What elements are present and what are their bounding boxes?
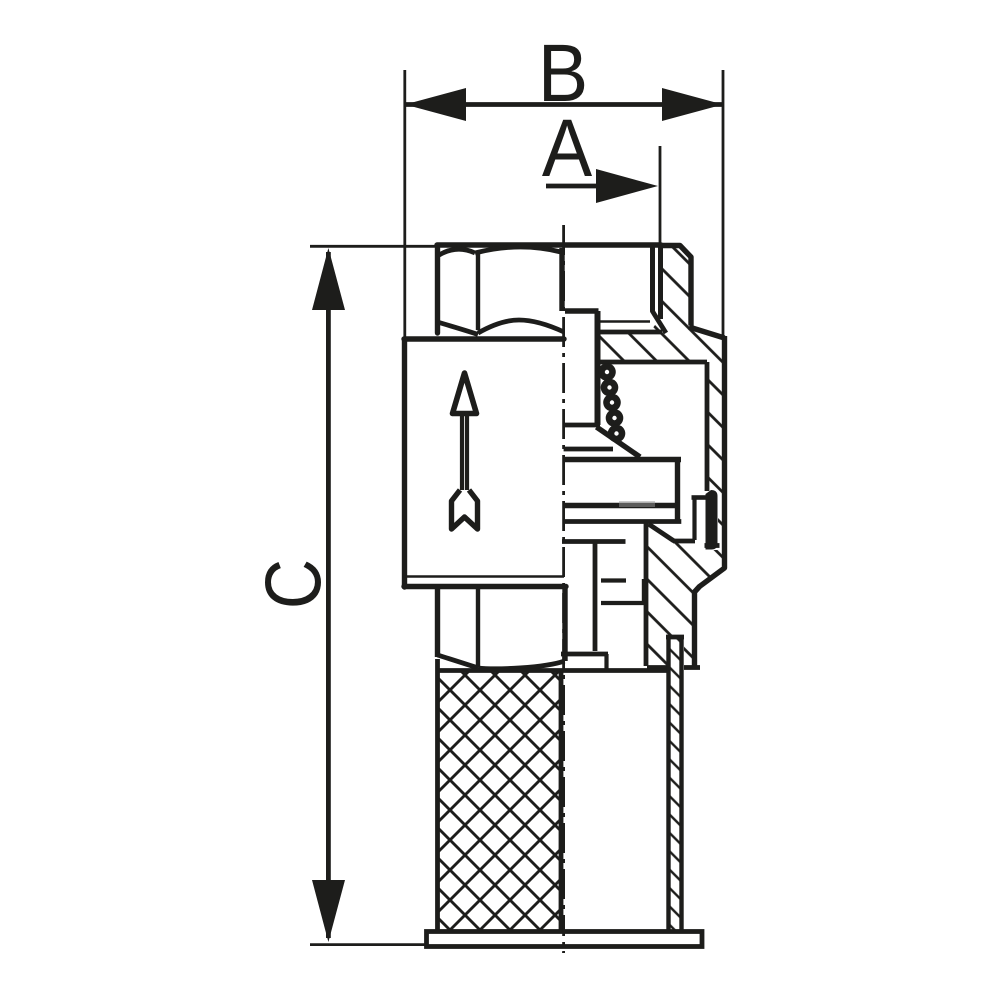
svg-text:A: A [542,102,593,194]
svg-text:C: C [249,559,337,609]
